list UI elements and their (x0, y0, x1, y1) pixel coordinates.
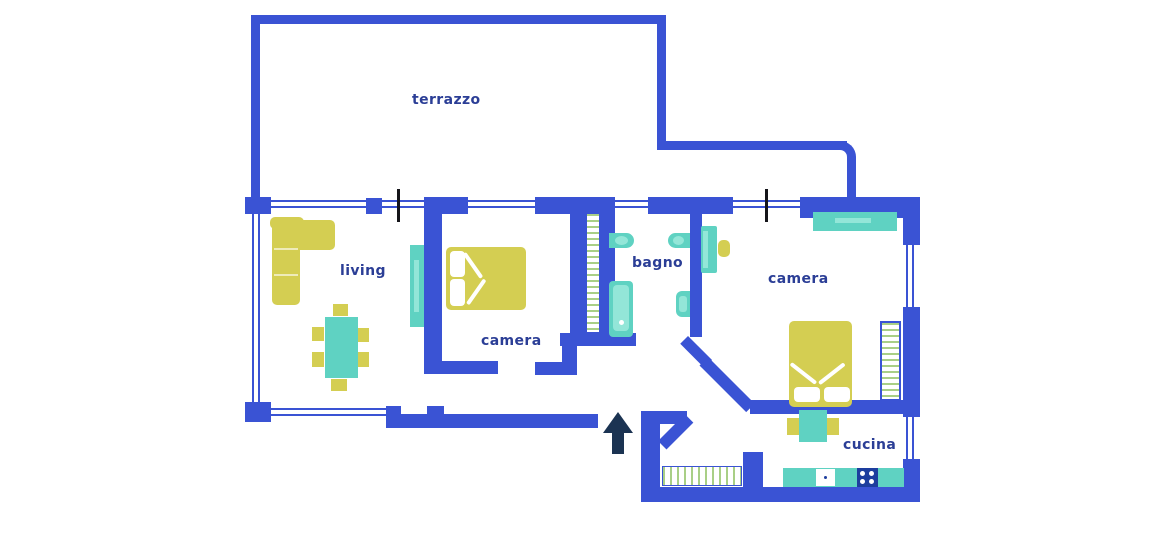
window (615, 200, 648, 208)
floor-plan: terrazzo (0, 0, 1162, 553)
terrace-wall-top (251, 15, 666, 24)
burner (869, 471, 874, 476)
chair-icon (312, 327, 324, 341)
terrace-wall-shelf (657, 141, 847, 150)
kitchen-counter-icon (783, 468, 904, 487)
chair-icon (787, 418, 799, 435)
window (271, 200, 366, 208)
room-label-terrazzo: terrazzo (412, 92, 481, 108)
wall-corner-nw (245, 197, 271, 214)
stove-icon (857, 468, 878, 487)
entrance-arrow-icon (603, 412, 633, 433)
wardrobe-detail (414, 260, 419, 312)
wall-pier (366, 198, 382, 214)
room-label-cucina: cucina (843, 437, 896, 453)
room-label-camera1: camera (481, 333, 542, 349)
wall-camera1-right (570, 197, 585, 337)
wall-pier (648, 197, 733, 214)
radiator-icon (880, 321, 901, 401)
chair-icon (358, 352, 369, 367)
desk-chair-icon (718, 240, 730, 257)
burner (869, 479, 874, 484)
chair-icon (333, 304, 348, 316)
burner (860, 479, 865, 484)
wall-right (903, 197, 920, 245)
wall-camera1-bottom (428, 361, 498, 374)
section-mark (397, 189, 400, 222)
terrace-wall-curve (838, 141, 856, 203)
window (906, 245, 914, 307)
sink-drain (824, 476, 827, 479)
room-label-bagno: bagno (632, 255, 683, 271)
washbasin-bowl (615, 236, 628, 245)
wall-pier (427, 406, 444, 416)
wall-camera1-left (424, 197, 442, 374)
burner (860, 471, 865, 476)
wall-pier (386, 406, 401, 416)
sofa-seam (274, 274, 298, 276)
bidet-inner (679, 296, 687, 312)
window (382, 200, 426, 208)
toilet-bowl (673, 236, 684, 245)
chair-icon (358, 328, 369, 342)
terrace-wall-left (251, 15, 260, 200)
terrace-wall-right (657, 15, 666, 150)
wardrobe-detail (835, 218, 871, 223)
kitchen-table-icon (799, 410, 827, 442)
room-label-camera2: camera (768, 271, 829, 287)
entrance-arrow-shaft (612, 432, 624, 454)
section-mark (765, 189, 768, 222)
chair-icon (312, 352, 324, 367)
desk-detail (703, 231, 708, 268)
wall-bottom-living (386, 414, 598, 428)
dining-table-icon (325, 317, 358, 378)
wall-hall-kitchen-divider (743, 452, 763, 488)
bathtub-drain (619, 320, 624, 325)
chair-icon (827, 418, 839, 435)
room-label-living: living (340, 263, 386, 279)
wall-bottom (645, 487, 920, 502)
window (906, 417, 914, 459)
window (252, 214, 260, 403)
window (468, 200, 535, 208)
pillow-icon (450, 279, 465, 306)
wall-corner-sw (245, 402, 271, 422)
sofa-icon (272, 220, 300, 305)
closet-icon (585, 212, 601, 334)
window (271, 408, 386, 416)
pillow-icon (824, 387, 850, 402)
sofa-seam (274, 248, 298, 250)
pillow-icon (794, 387, 820, 402)
chair-icon (331, 379, 347, 391)
radiator-icon (662, 466, 742, 486)
wall-diagonal (700, 357, 755, 412)
